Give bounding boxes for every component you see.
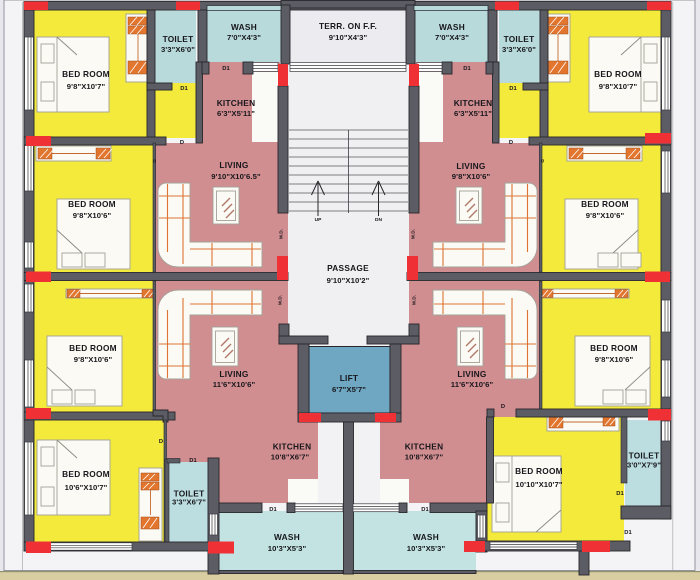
svg-text:10'3"X5'3": 10'3"X5'3" [268,544,307,553]
svg-text:M.D.: M.D. [411,229,417,239]
svg-text:10'3"X5'3": 10'3"X5'3" [407,544,446,553]
svg-text:LIFT: LIFT [340,373,359,383]
svg-text:7'0"X4'3": 7'0"X4'3" [435,33,469,42]
svg-text:TERR. ON F.F.: TERR. ON F.F. [319,21,377,31]
svg-text:M.D.: M.D. [412,295,418,305]
svg-text:D1: D1 [421,507,429,513]
svg-text:D1: D1 [463,66,471,72]
svg-text:M.D.: M.D. [278,295,284,305]
svg-text:7'0"X4'3": 7'0"X4'3" [227,33,261,42]
svg-text:D: D [501,404,505,410]
svg-text:TOILET: TOILET [163,34,194,44]
svg-text:D: D [159,439,163,445]
svg-text:KITCHEN: KITCHEN [273,442,312,452]
svg-text:10'8"X6'7": 10'8"X6'7" [271,453,310,462]
svg-text:KITCHEN: KITCHEN [405,442,444,452]
svg-text:PASSAGE: PASSAGE [327,263,369,273]
svg-text:9'8"X10'6": 9'8"X10'6" [73,211,112,220]
svg-text:D1: D1 [616,491,624,497]
svg-text:UP: UP [315,217,322,223]
svg-text:WASH: WASH [439,22,465,32]
svg-text:WASH: WASH [274,532,300,542]
svg-text:3'3"X6'7": 3'3"X6'7" [172,498,206,507]
svg-text:LIVING: LIVING [456,161,485,171]
svg-text:BED ROOM: BED ROOM [581,199,629,209]
svg-text:D1: D1 [269,507,277,513]
svg-text:3'0"X7'9": 3'0"X7'9" [627,461,661,470]
svg-text:3'3"X6'0": 3'3"X6'0" [502,45,536,54]
svg-text:9'10"X10'2": 9'10"X10'2" [327,276,370,285]
svg-text:D1: D1 [222,66,230,72]
svg-text:9'10"X4'3": 9'10"X4'3" [329,33,368,42]
svg-text:D: D [539,159,545,163]
svg-text:9'8"X10'7": 9'8"X10'7" [599,82,638,91]
svg-text:D: D [152,159,158,163]
svg-text:6'3"X5'11": 6'3"X5'11" [454,109,492,118]
svg-text:11'6"X10'6": 11'6"X10'6" [451,380,494,389]
svg-text:BED ROOM: BED ROOM [62,469,110,479]
svg-text:11'6"X10'6": 11'6"X10'6" [213,380,256,389]
svg-text:LIVING: LIVING [457,369,486,379]
svg-text:6'3"X5'11": 6'3"X5'11" [217,109,255,118]
svg-text:D1: D1 [509,86,517,92]
svg-text:KITCHEN: KITCHEN [454,98,493,108]
svg-text:9'8"X10'7": 9'8"X10'7" [67,82,106,91]
svg-text:D: D [180,140,184,146]
svg-text:3'3"X6'0": 3'3"X6'0" [161,45,195,54]
svg-text:BED ROOM: BED ROOM [515,466,563,476]
svg-text:D: D [509,140,513,146]
svg-text:10'6"X10'7": 10'6"X10'7" [65,483,108,492]
svg-text:WASH: WASH [231,22,257,32]
svg-text:LIVING: LIVING [219,160,248,170]
svg-text:9'8"X10'6": 9'8"X10'6" [452,172,491,181]
svg-text:LIVING: LIVING [219,369,248,379]
svg-text:D1: D1 [180,86,188,92]
svg-text:TOILET: TOILET [504,34,535,44]
svg-text:DN: DN [375,217,382,223]
svg-text:WASH: WASH [413,532,439,542]
svg-text:9'8"X10'6": 9'8"X10'6" [74,355,113,364]
svg-text:10'8"X6'7": 10'8"X6'7" [405,453,444,462]
svg-text:D1: D1 [189,458,197,464]
svg-text:9'8"X10'6": 9'8"X10'6" [586,211,625,220]
svg-text:BED ROOM: BED ROOM [69,343,117,353]
svg-text:BED ROOM: BED ROOM [68,199,116,209]
svg-text:TOILET: TOILET [629,451,660,461]
svg-text:9'10"X10'6.5": 9'10"X10'6.5" [211,172,261,181]
svg-text:9'8"X10'6": 9'8"X10'6" [595,355,634,364]
svg-text:KITCHEN: KITCHEN [217,98,256,108]
svg-text:BED ROOM: BED ROOM [62,69,110,79]
svg-text:D1: D1 [624,530,632,536]
svg-text:M.D.: M.D. [279,229,285,239]
svg-text:10'10"X10'7": 10'10"X10'7" [515,480,562,489]
svg-text:BED ROOM: BED ROOM [590,343,638,353]
svg-text:6'7"X5'7": 6'7"X5'7" [332,385,366,394]
svg-text:BED ROOM: BED ROOM [594,69,642,79]
